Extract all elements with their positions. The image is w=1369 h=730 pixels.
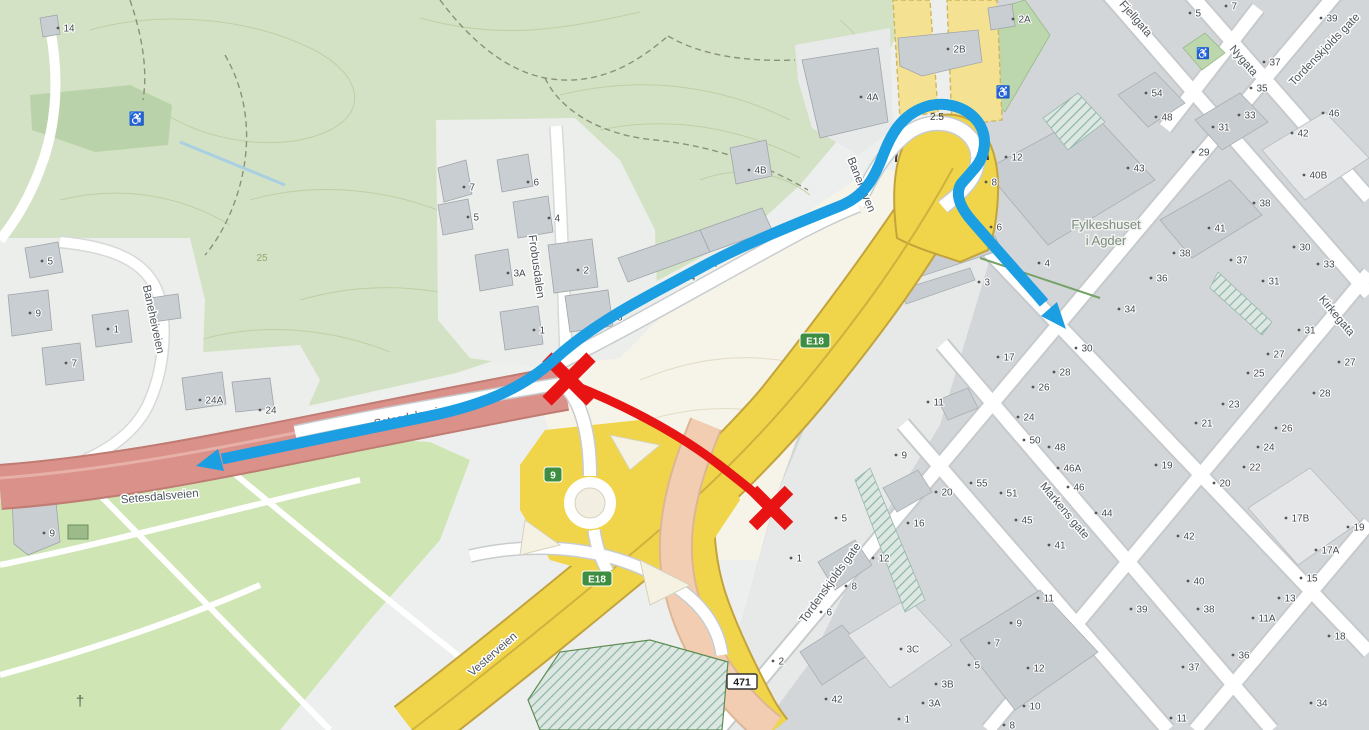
- svg-text:9: 9: [902, 451, 908, 462]
- svg-text:5: 5: [975, 661, 981, 672]
- area-label: i Agder: [1086, 233, 1127, 248]
- svg-text:1: 1: [905, 715, 911, 726]
- svg-text:28: 28: [1060, 368, 1072, 379]
- svg-text:24A: 24A: [206, 396, 224, 407]
- svg-text:4: 4: [555, 214, 561, 225]
- svg-text:8: 8: [852, 582, 858, 593]
- svg-text:24: 24: [1264, 443, 1276, 454]
- svg-text:5: 5: [474, 213, 480, 224]
- route-badge: E18: [800, 333, 830, 348]
- svg-text:26: 26: [1282, 424, 1294, 435]
- map-viewport[interactable]: BaneheiveienFrobusdalenSetesdalsveienSet…: [0, 0, 1369, 730]
- wheelchair-icon: ♿: [996, 85, 1011, 99]
- area-label: 25: [256, 253, 268, 264]
- svg-text:12: 12: [1012, 153, 1024, 164]
- svg-text:55: 55: [977, 479, 989, 490]
- svg-text:471: 471: [733, 677, 751, 689]
- svg-text:9: 9: [550, 471, 556, 482]
- area-label: Fylkeshuset: [1071, 217, 1141, 232]
- svg-text:31: 31: [1269, 277, 1281, 288]
- svg-text:14: 14: [64, 24, 76, 35]
- svg-text:4: 4: [1045, 259, 1051, 270]
- svg-text:42: 42: [832, 695, 844, 706]
- svg-text:35: 35: [1257, 84, 1269, 95]
- svg-text:34: 34: [1125, 305, 1137, 316]
- svg-text:19: 19: [1354, 523, 1366, 534]
- svg-text:26: 26: [1039, 383, 1051, 394]
- svg-text:22: 22: [1250, 463, 1262, 474]
- map-canvas[interactable]: BaneheiveienFrobusdalenSetesdalsveienSet…: [0, 0, 1369, 730]
- route-badge: 9: [544, 467, 562, 482]
- svg-text:30: 30: [1300, 243, 1312, 254]
- svg-text:12: 12: [1034, 664, 1046, 675]
- cross-icon: †: [76, 693, 84, 710]
- svg-text:20: 20: [942, 488, 954, 499]
- svg-text:8: 8: [1010, 721, 1016, 730]
- svg-text:37: 37: [1237, 256, 1249, 267]
- svg-text:25: 25: [1254, 369, 1266, 380]
- wheelchair-icon: ♿: [129, 111, 145, 126]
- svg-text:33: 33: [1245, 111, 1257, 122]
- svg-text:27: 27: [1345, 358, 1357, 369]
- svg-text:31: 31: [1305, 326, 1317, 337]
- svg-text:38: 38: [1180, 249, 1192, 260]
- svg-text:54: 54: [1152, 89, 1164, 100]
- svg-text:24: 24: [266, 406, 278, 417]
- svg-text:7: 7: [995, 639, 1001, 650]
- svg-text:17B: 17B: [1292, 514, 1310, 525]
- svg-text:2: 2: [779, 657, 785, 668]
- svg-text:40: 40: [1194, 577, 1206, 588]
- svg-text:38: 38: [1260, 199, 1272, 210]
- svg-text:17: 17: [1004, 353, 1016, 364]
- svg-text:36: 36: [1239, 651, 1251, 662]
- svg-text:3A: 3A: [514, 269, 527, 280]
- svg-text:2: 2: [584, 266, 590, 277]
- svg-text:4A: 4A: [867, 93, 880, 104]
- svg-text:39: 39: [1327, 14, 1339, 25]
- svg-text:46: 46: [1329, 109, 1341, 120]
- svg-text:28: 28: [1320, 389, 1332, 400]
- svg-text:42: 42: [1184, 532, 1196, 543]
- route-badge: E18: [582, 571, 612, 586]
- svg-text:46A: 46A: [1064, 464, 1082, 475]
- svg-text:33: 33: [1324, 260, 1336, 271]
- svg-text:9: 9: [1017, 619, 1023, 630]
- svg-text:11A: 11A: [1259, 614, 1276, 625]
- svg-text:44: 44: [1102, 509, 1114, 520]
- svg-text:40B: 40B: [1310, 171, 1328, 182]
- svg-text:3B: 3B: [942, 680, 955, 691]
- svg-text:3: 3: [985, 278, 991, 289]
- svg-text:7: 7: [72, 359, 78, 370]
- svg-text:17A: 17A: [1322, 546, 1340, 557]
- svg-text:11: 11: [1177, 714, 1188, 725]
- hedge-plot: [68, 525, 88, 539]
- svg-text:48: 48: [1162, 113, 1174, 124]
- svg-text:38: 38: [1204, 605, 1216, 616]
- svg-text:46: 46: [1074, 483, 1086, 494]
- svg-text:9: 9: [50, 529, 56, 540]
- area-label: 2.5: [930, 112, 944, 123]
- svg-text:11: 11: [934, 398, 945, 409]
- svg-text:6: 6: [827, 608, 833, 619]
- svg-text:50: 50: [1030, 436, 1042, 447]
- svg-text:42: 42: [1298, 129, 1310, 140]
- svg-text:6: 6: [997, 223, 1003, 234]
- wheelchair-icon: ♿: [1196, 47, 1210, 60]
- svg-text:1: 1: [797, 554, 803, 565]
- svg-text:39: 39: [1137, 605, 1149, 616]
- svg-text:6: 6: [534, 178, 540, 189]
- svg-text:1: 1: [540, 326, 546, 337]
- svg-text:1: 1: [114, 325, 120, 336]
- svg-text:41: 41: [1215, 224, 1227, 235]
- svg-text:24: 24: [1024, 413, 1036, 424]
- svg-text:23: 23: [1229, 400, 1241, 411]
- svg-text:19: 19: [1162, 461, 1174, 472]
- svg-text:34: 34: [1317, 699, 1329, 710]
- svg-text:36: 36: [1157, 274, 1169, 285]
- svg-text:7: 7: [1232, 2, 1238, 13]
- svg-text:2B: 2B: [954, 45, 967, 56]
- svg-text:3A: 3A: [929, 699, 942, 710]
- route-badge: 471: [727, 674, 757, 689]
- svg-text:29: 29: [1199, 148, 1211, 159]
- svg-text:5: 5: [1196, 9, 1202, 20]
- svg-text:E18: E18: [806, 337, 824, 348]
- svg-text:E18: E18: [588, 575, 606, 586]
- svg-text:15: 15: [1307, 574, 1319, 585]
- svg-text:48: 48: [1055, 443, 1067, 454]
- svg-text:37: 37: [1189, 663, 1201, 674]
- svg-text:18: 18: [1335, 632, 1347, 643]
- svg-text:2A: 2A: [1019, 15, 1032, 26]
- svg-text:21: 21: [1202, 419, 1214, 430]
- svg-text:9: 9: [36, 309, 42, 320]
- svg-text:3C: 3C: [907, 645, 920, 656]
- svg-text:5: 5: [842, 514, 848, 525]
- svg-text:41: 41: [1055, 541, 1067, 552]
- svg-text:31: 31: [1219, 123, 1231, 134]
- svg-text:27: 27: [1274, 350, 1286, 361]
- svg-text:8: 8: [992, 178, 998, 189]
- svg-text:4B: 4B: [755, 166, 768, 177]
- svg-text:10: 10: [1030, 702, 1042, 713]
- svg-text:30: 30: [1082, 344, 1094, 355]
- svg-text:11: 11: [1044, 594, 1055, 605]
- svg-text:43: 43: [1134, 164, 1146, 175]
- svg-text:5: 5: [48, 257, 54, 268]
- svg-text:45: 45: [1022, 516, 1034, 527]
- svg-text:51: 51: [1007, 489, 1019, 500]
- svg-text:12: 12: [879, 554, 891, 565]
- svg-text:13: 13: [1285, 594, 1297, 605]
- svg-text:7: 7: [470, 183, 476, 194]
- svg-text:37: 37: [1270, 58, 1282, 69]
- svg-text:16: 16: [914, 519, 926, 530]
- svg-text:20: 20: [1220, 479, 1232, 490]
